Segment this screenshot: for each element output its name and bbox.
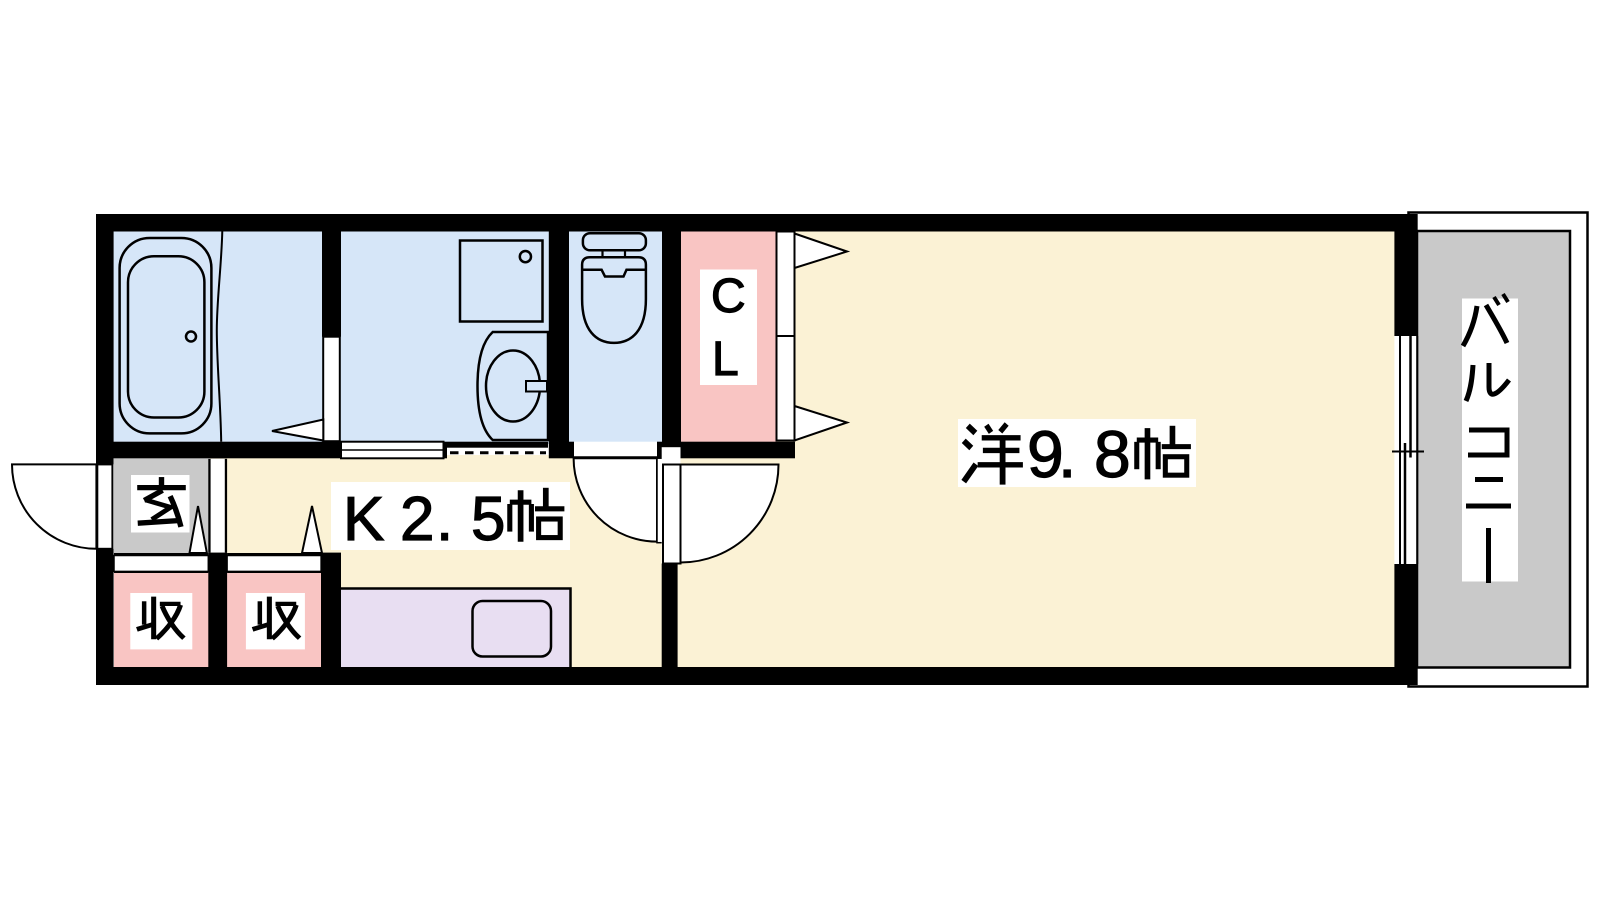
- svg-text:K: K: [343, 485, 384, 554]
- svg-text:C: C: [711, 270, 746, 323]
- svg-text:5: 5: [471, 485, 505, 554]
- svg-text:.: .: [1058, 417, 1076, 491]
- svg-text:.: .: [436, 485, 453, 554]
- svg-text:L: L: [712, 333, 739, 386]
- svg-text:8: 8: [1094, 417, 1131, 491]
- svg-text:2: 2: [400, 485, 434, 554]
